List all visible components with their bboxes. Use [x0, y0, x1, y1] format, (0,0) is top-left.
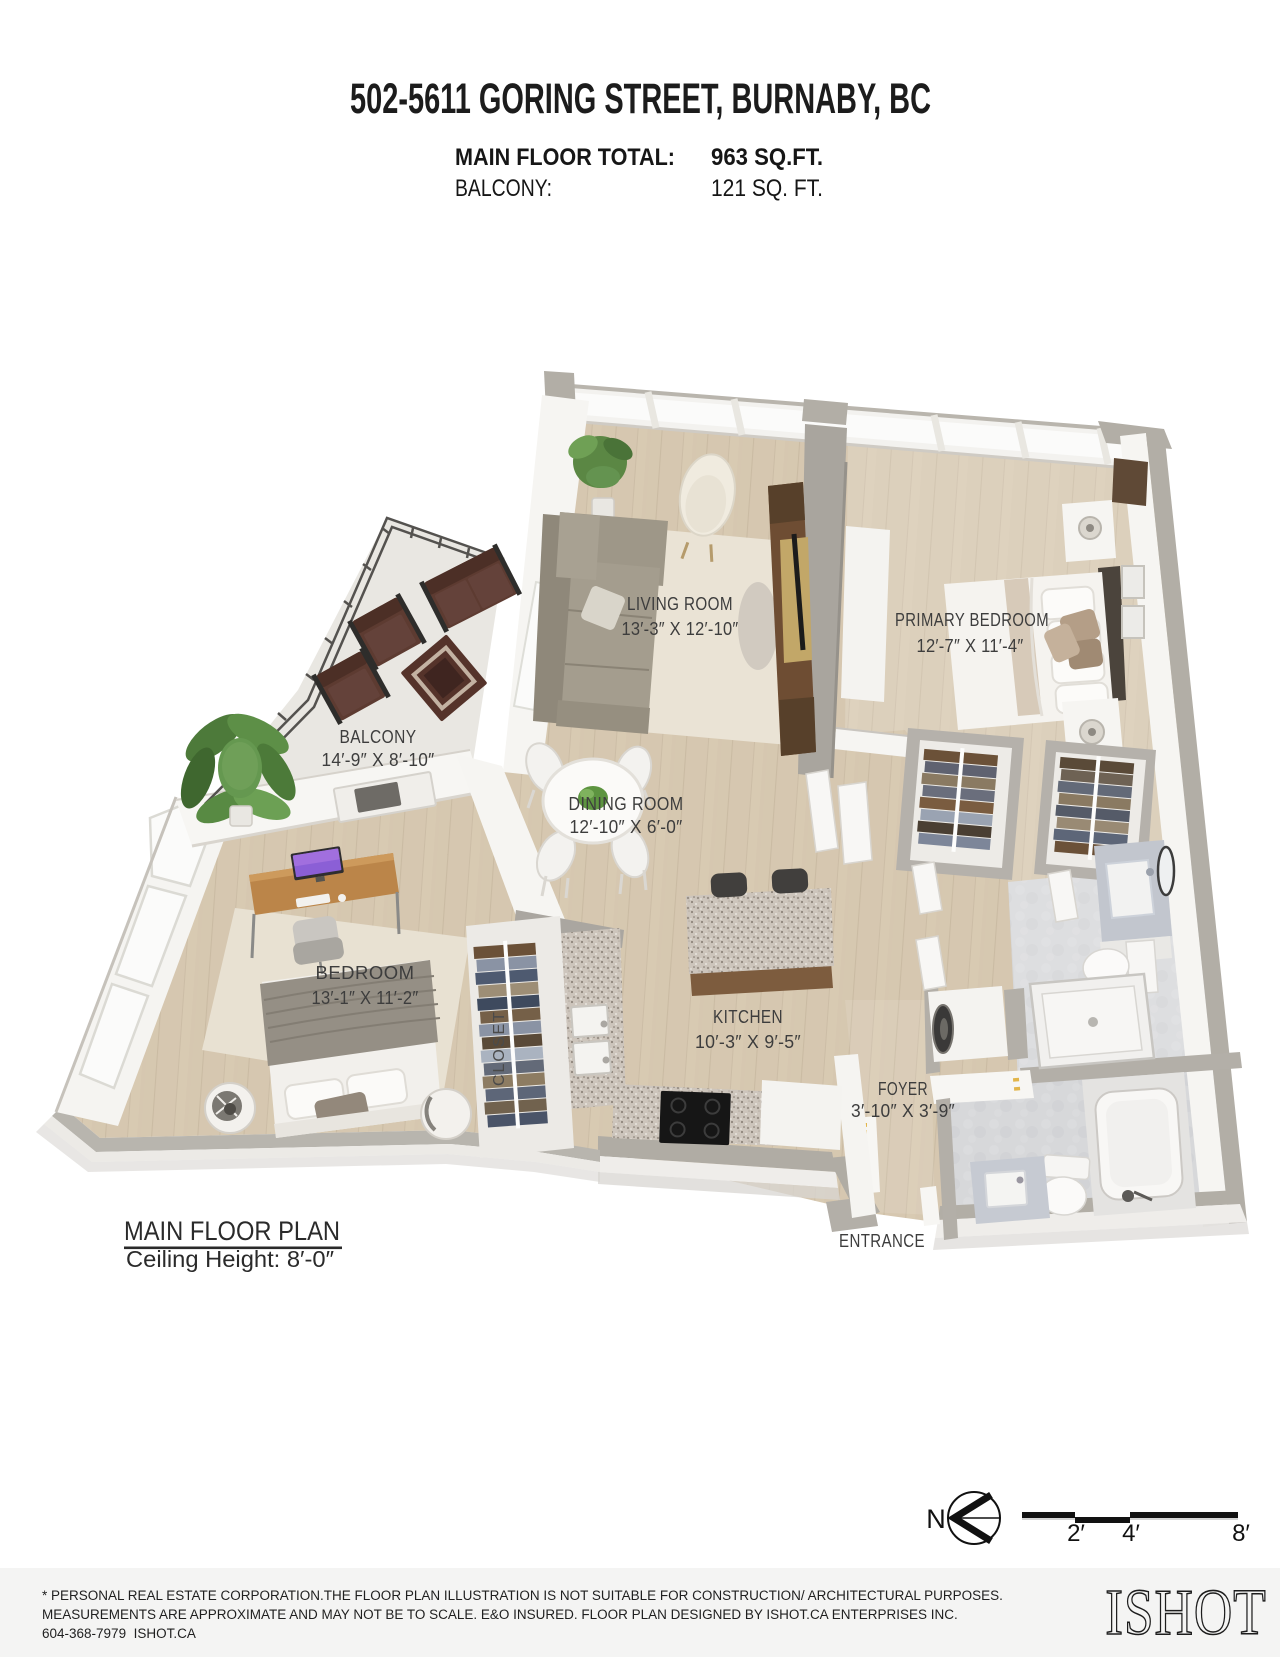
svg-text:N: N	[926, 1504, 946, 1534]
svg-text:KITCHEN: KITCHEN	[713, 1006, 783, 1027]
svg-text:CLOSET: CLOSET	[491, 1010, 508, 1086]
svg-text:BALCONY: BALCONY	[340, 726, 417, 747]
svg-text:MAIN FLOOR PLAN: MAIN FLOOR PLAN	[124, 1216, 340, 1246]
svg-text:2′: 2′	[1067, 1520, 1085, 1547]
svg-text:3′-10″ X 3′-9″: 3′-10″ X 3′-9″	[851, 1100, 955, 1121]
svg-text:DINING ROOM: DINING ROOM	[569, 793, 684, 814]
svg-text:BEDROOM: BEDROOM	[316, 962, 415, 983]
svg-text:Ceiling Height: 8′-0″: Ceiling Height: 8′-0″	[126, 1246, 334, 1272]
svg-text:14′-9″ X 8′-10″: 14′-9″ X 8′-10″	[322, 749, 435, 770]
svg-text:BALCONY:: BALCONY:	[455, 175, 552, 202]
svg-text:LIVING ROOM: LIVING ROOM	[627, 593, 733, 614]
svg-text:502-5611 GORING STREET, BURNAB: 502-5611 GORING STREET, BURNABY, BC	[350, 75, 931, 123]
svg-text:963 SQ.FT.: 963 SQ.FT.	[711, 144, 823, 171]
svg-text:MAIN FLOOR TOTAL:: MAIN FLOOR TOTAL:	[455, 144, 675, 171]
svg-text:8′: 8′	[1232, 1520, 1250, 1547]
svg-text:4′: 4′	[1122, 1520, 1140, 1547]
svg-text:10′-3″ X 9′-5″: 10′-3″ X 9′-5″	[695, 1031, 801, 1052]
svg-text:13′-3″ X 12′-10″: 13′-3″ X 12′-10″	[622, 618, 739, 639]
svg-text:12′-10″ X 6′-0″: 12′-10″ X 6′-0″	[570, 816, 683, 837]
svg-text:12′-7″ X 11′-4″: 12′-7″ X 11′-4″	[917, 635, 1024, 656]
svg-text:ENTRANCE: ENTRANCE	[839, 1230, 925, 1251]
svg-text:121 SQ. FT.: 121 SQ. FT.	[711, 175, 823, 202]
svg-text:PRIMARY BEDROOM: PRIMARY BEDROOM	[895, 609, 1049, 630]
svg-text:FOYER: FOYER	[878, 1078, 928, 1099]
svg-text:13′-1″ X 11′-2″: 13′-1″ X 11′-2″	[312, 987, 419, 1008]
